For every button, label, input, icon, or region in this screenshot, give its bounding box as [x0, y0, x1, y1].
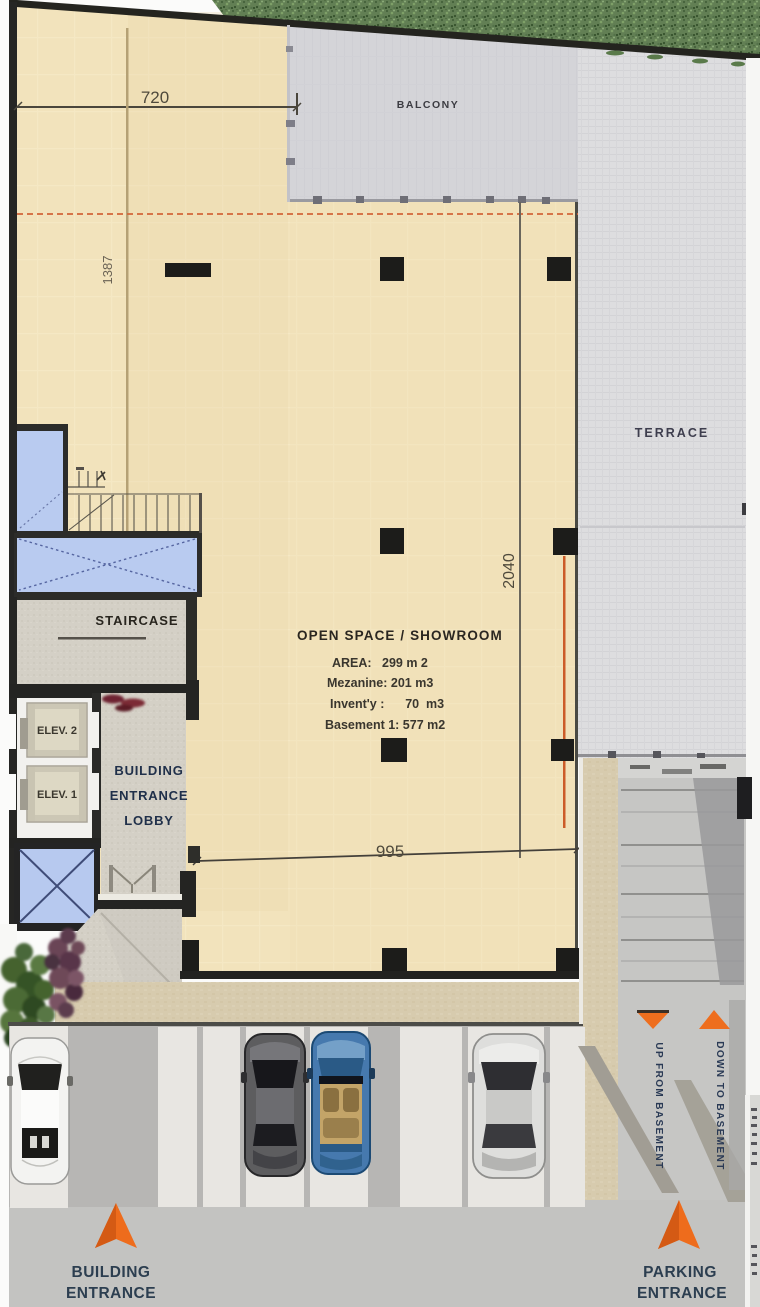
svg-text:ENTRANCE: ENTRANCE — [66, 1285, 156, 1302]
svg-text:AREA: 299 m 2: AREA: 299 m 2 — [332, 656, 428, 670]
svg-text:UP FROM BASEMENT: UP FROM BASEMENT — [653, 1042, 664, 1169]
svg-text:Invent'y : 70 m3: Invent'y : 70 m3 — [330, 697, 444, 711]
svg-text:PARKING: PARKING — [643, 1264, 717, 1281]
svg-text:TERRACE: TERRACE — [635, 426, 709, 440]
svg-text:Basement 1: 577 m2: Basement 1: 577 m2 — [325, 718, 445, 732]
svg-text:BALCONY: BALCONY — [397, 99, 459, 111]
svg-text:OPEN SPACE / SHOWROOM: OPEN SPACE / SHOWROOM — [297, 628, 503, 643]
svg-text:ELEV. 1: ELEV. 1 — [37, 789, 77, 801]
svg-text:LOBBY: LOBBY — [124, 813, 174, 828]
svg-text:995: 995 — [376, 842, 404, 861]
svg-text:2040: 2040 — [501, 553, 518, 589]
svg-text:ENTRANCE: ENTRANCE — [110, 788, 189, 803]
svg-text:ELEV. 2: ELEV. 2 — [37, 725, 77, 737]
svg-text:ENTRANCE: ENTRANCE — [637, 1285, 727, 1302]
svg-text:BUILDING: BUILDING — [114, 763, 183, 778]
svg-text:720: 720 — [141, 88, 169, 107]
svg-text:Mezanine: 201 m3: Mezanine: 201 m3 — [327, 676, 433, 690]
svg-text:STAIRCASE: STAIRCASE — [95, 613, 178, 628]
svg-text:1387: 1387 — [100, 256, 115, 285]
svg-text:DOWN TO BASEMENT: DOWN TO BASEMENT — [714, 1041, 725, 1170]
svg-text:BUILDING: BUILDING — [72, 1264, 151, 1281]
